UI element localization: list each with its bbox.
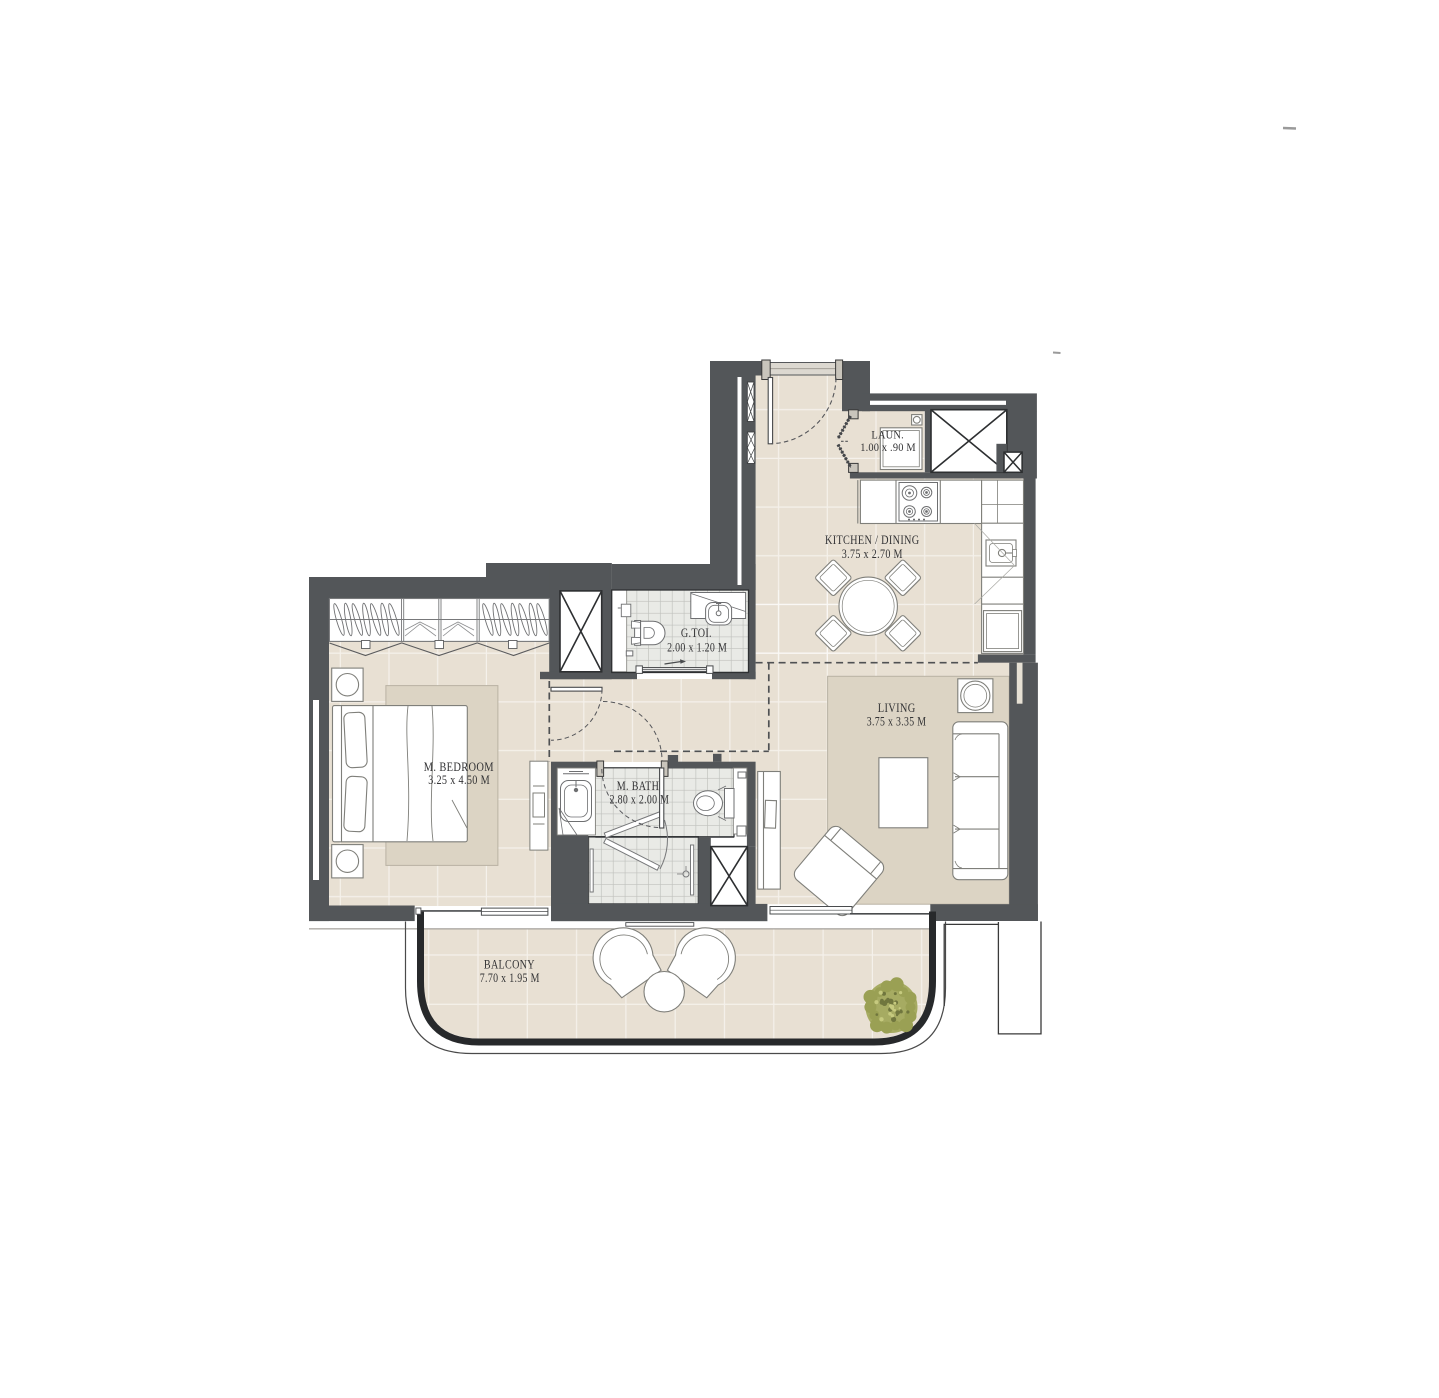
svg-text:2.00 x 1.20 M: 2.00 x 1.20 M [667,640,727,654]
svg-text:M. BEDROOM: M. BEDROOM [424,760,494,774]
svg-text:G.TOI.: G.TOI. [681,626,712,640]
svg-text:BALCONY: BALCONY [484,957,535,971]
svg-text:3.75 x 2.70 M: 3.75 x 2.70 M [842,547,903,561]
svg-text:1.00 x .90 M: 1.00 x .90 M [860,442,916,454]
svg-text:7.70 x 1.95 M: 7.70 x 1.95 M [480,971,540,985]
svg-text:3.25 x 4.50 M: 3.25 x 4.50 M [428,773,490,787]
svg-text:KITCHEN / DINING: KITCHEN / DINING [825,533,920,547]
svg-text:LIVING: LIVING [878,701,916,715]
svg-text:M. BATH: M. BATH [617,779,659,793]
svg-text:2.80 x 2.00 M: 2.80 x 2.00 M [610,792,670,806]
svg-text:LAUN.: LAUN. [871,429,904,441]
svg-text:3.75 x 3.35 M: 3.75 x 3.35 M [867,715,927,729]
